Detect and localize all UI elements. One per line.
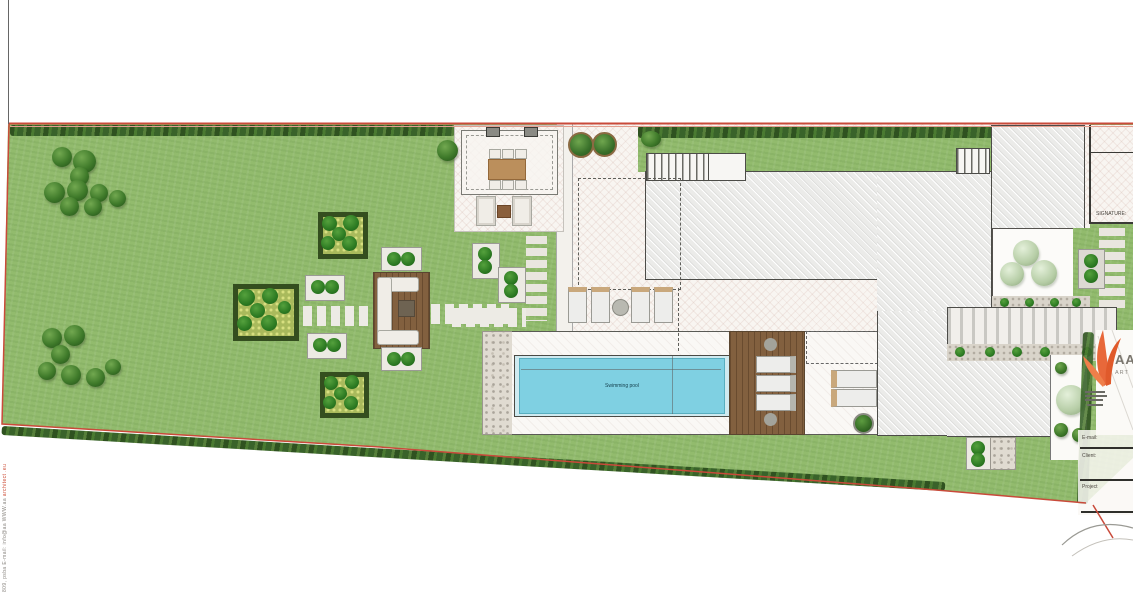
boundary-line <box>2 124 1086 503</box>
boundary-line <box>1093 505 1113 538</box>
contact-text-red: architect .eu <box>2 464 8 496</box>
sketch-curve <box>1072 539 1133 556</box>
logo-subtext: ART <box>1115 370 1129 376</box>
garden-plan-sheet: Swimming pool <box>0 0 1133 599</box>
logo-letters: AA <box>1115 352 1133 367</box>
margin-contact-text: 809, psba E-mail: info@aa WWW.aa archite… <box>2 464 8 592</box>
contact-text-gray: 809, psba E-mail: info@aa WWW.aa <box>2 496 8 592</box>
plan-overlay <box>0 0 1133 599</box>
